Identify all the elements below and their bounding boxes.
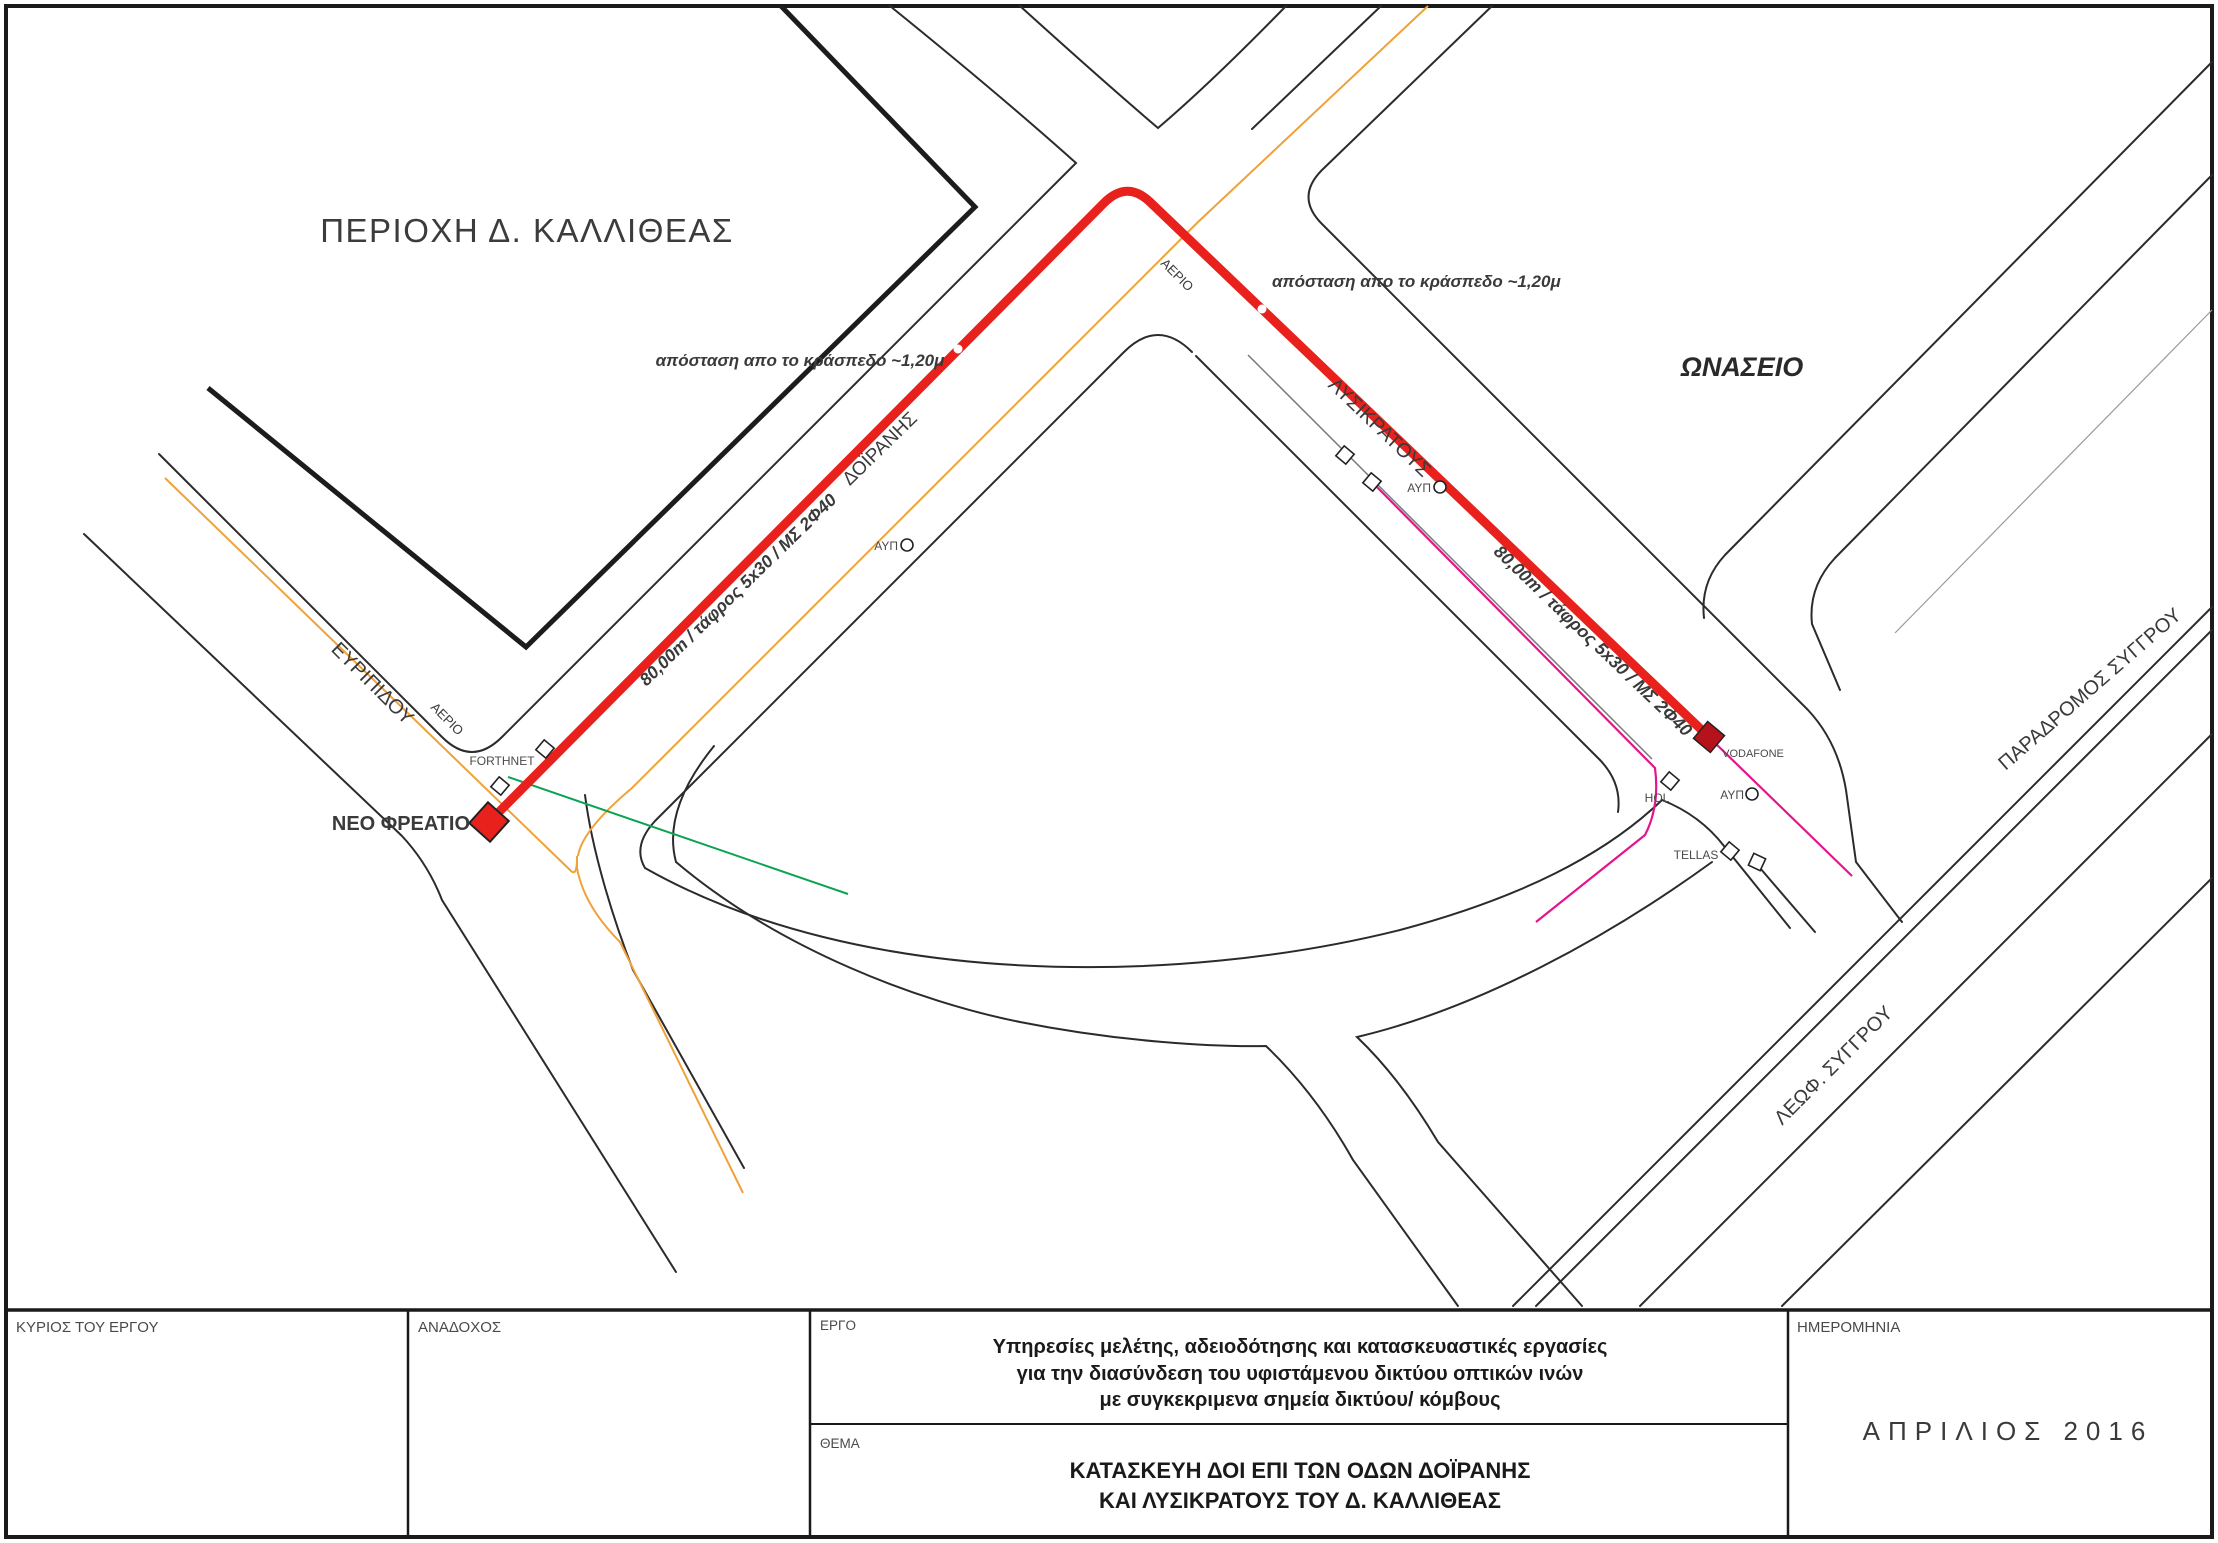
date-value: ΑΠΡΙΛΙΟΣ 2016 [1863,1416,2154,1446]
project-line-3: με συγκεκριμενα σημεία δικτύου/ κόμβους [1100,1389,1501,1411]
route-segment-label-lysikratous: 80,00m / τάφρος 5x30 / ΜΣ 2Φ40 [1490,541,1696,740]
tellas-label: TELLAS [1674,848,1719,862]
road-edge-doiranis-se-and-crescent-north [640,335,1662,967]
curb-distance-point-doiranis [954,345,963,354]
gas-line-doiranis [578,6,1428,856]
contractor-cell-label: ΑΝΑΔΟΧΟΣ [418,1319,501,1336]
utility-box-lysikratous-1 [1336,446,1354,464]
utility-box-tellas-2 [1748,853,1765,870]
ayp-node-3 [1746,788,1758,800]
utility-box-hol [1661,772,1679,790]
building-outline [208,6,975,647]
ayp-node-1 [901,539,913,551]
curb-distance-note-doiranis: απόσταση απο το κράσπεδο ~1,20μ [656,351,945,370]
road-edge-paradromos-se [1811,175,2212,690]
gas-label-evripidou: ΑΕΡΙΟ [428,699,467,738]
street-label-lysikratous: ΛΥΣΙΚΡΑΤΟΥΣ [1324,374,1435,482]
gas-line-south-branch [577,856,743,1193]
date-cell-label: ΗΜΕΡΟΜΗΝΙΑ [1797,1319,1900,1336]
subject-line-2: ΚΑΙ ΛΥΣΙΚΡΑΤΟΥΣ ΤΟΥ Δ. ΚΑΛΛΙΘΕΑΣ [1099,1488,1501,1513]
project-cell-label: ΕΡΓΟ [820,1318,856,1333]
road-edge-doiranis-nw [159,6,1076,752]
subject-line-1: ΚΑΤΑΣΚΕΥΗ ΔΟΙ ΕΠΙ ΤΩΝ ΟΔΩΝ ΔΟΪΡΑΝΗΣ [1070,1458,1531,1483]
street-label-doiranis: ΔΟΪΡΑΝΗΣ [839,408,922,490]
route-segment-label-doiranis: 80,00m / τάφρος 5x30 / ΜΣ 2Φ40 [635,489,840,689]
forthnet-label: FORTHNET [469,754,535,768]
project-line-2: για την διασύνδεση του υφιστάμενου δικτύ… [1017,1363,1584,1385]
road-median-syggrou-b [1536,630,2212,1306]
road-edge-tellas-street [1662,800,1790,928]
street-label-evripidou: ΕΥΡΙΠΙΔΟΥ [327,638,418,729]
curb-distance-point-lysikratous [1258,305,1267,314]
utility-box-forthnet-2 [491,777,509,795]
road-edge-paradromos-median [1895,310,2212,633]
street-label-leoforos-syggrou: ΛΕΩΦ. ΣΥΓΓΡΟΥ [1770,1002,1897,1129]
new-manhole-label: ΝΕΟ ΦΡΕΑΤΙΟ [332,813,470,835]
curb-distance-note-lysikratous: απόσταση απο το κράσπεδο ~1,20μ [1272,272,1561,291]
owner-cell-label: ΚΥΡΙΟΣ ΤΟΥ ΕΡΓΟΥ [16,1319,158,1336]
region-title: ΠΕΡΙΟΧΗ Δ. ΚΑΛΛΙΘΕΑΣ [320,212,734,249]
hol-label: HOL [1645,791,1670,805]
ayp-label-1: ΑΥΠ [874,539,898,553]
landmark-label-onaseio: ΩΝΑΣΕΙΟ [1680,352,1804,382]
subject-cell-label: ΘΕΜΑ [820,1436,860,1451]
ayp-label-2: ΑΥΠ [1407,481,1431,495]
vodafone-label: VODAFONE [1722,748,1784,760]
road-edge-intersection-north-corner [1020,6,1286,128]
fiber-line-green [508,777,848,894]
ayp-label-3: ΑΥΠ [1720,788,1744,802]
road-edge-evripidou-sw [84,534,676,1272]
gas-label-doiranis: ΑΕΡΙΟ [1158,255,1197,294]
ayp-node-2 [1434,481,1446,493]
plan-sheet: ΠΕΡΙΟΧΗ Δ. ΚΑΛΛΙΘΕΑΣ ΩΝΑΣΕΙΟ ΕΥΡΙΠΙΔΟΥ Λ… [0,0,2218,1543]
street-plan-drawing: ΠΕΡΙΟΧΗ Δ. ΚΑΛΛΙΘΕΑΣ ΩΝΑΣΕΙΟ ΕΥΡΙΠΙΔΟΥ Λ… [0,0,2218,1543]
road-sidewalk-line-lysikratous [1248,355,1652,759]
road-edge-syggrou-se-1 [1640,734,2212,1306]
road-median-syggrou-a [1513,607,2212,1306]
road-edge-syggrou-se-2 [1782,878,2212,1306]
project-line-1: Υπηρεσίες μελέτης, αδειοδότησης και κατα… [993,1336,1608,1358]
street-label-paradromos-syggrou: ΠΑΡΑΔΡΟΜΟΣ ΣΥΓΓΡΟΥ [1994,604,2186,775]
road-edge-crescent-south [673,746,1458,1306]
road-edge-lysikratous-ne [1309,6,1903,922]
road-edge-paradromos-nw [1703,62,2212,618]
